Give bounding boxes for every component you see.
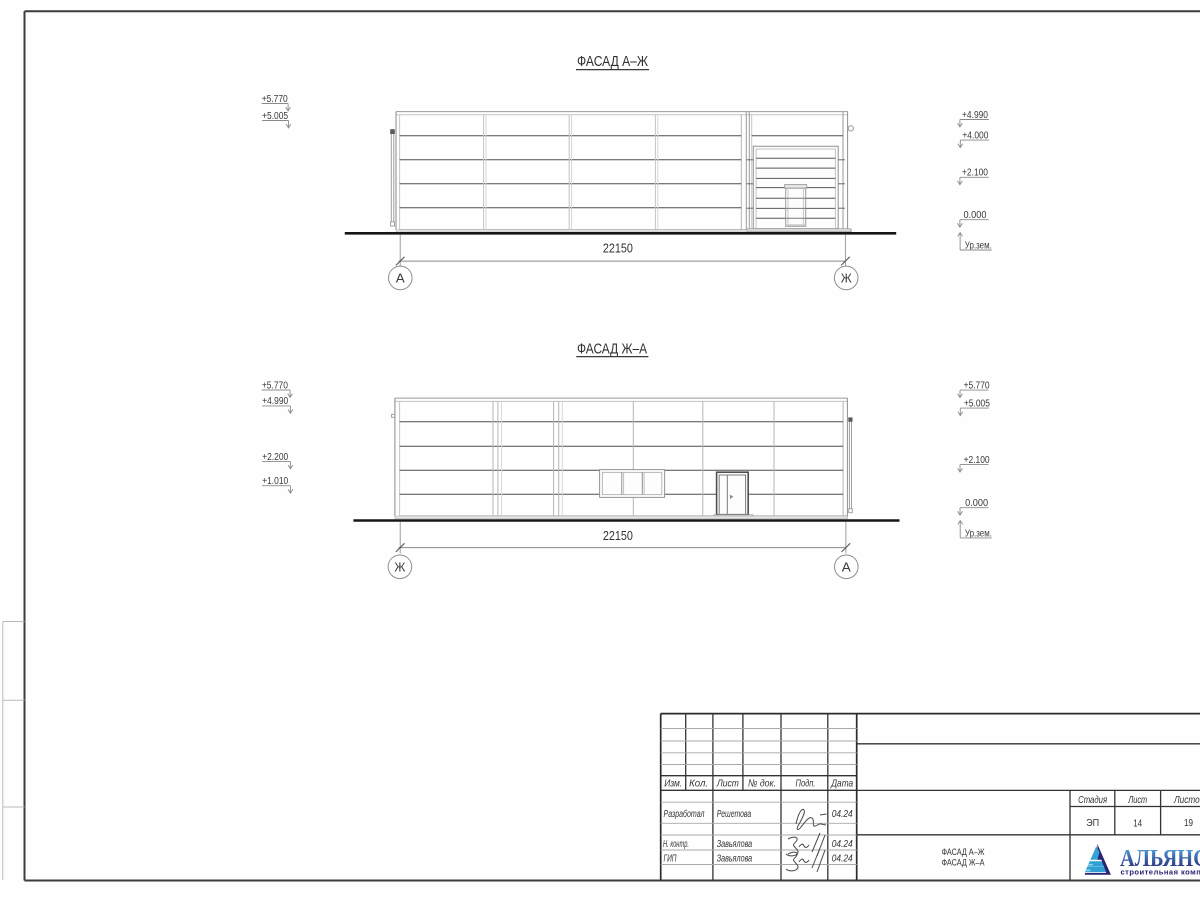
svg-text:ФАСАД А–Ж: ФАСАД А–Ж <box>577 53 648 70</box>
svg-text:№ док.: № док. <box>748 778 776 790</box>
svg-text:Завьялова: Завьялова <box>717 854 753 865</box>
svg-text:Разработал: Разработал <box>664 808 705 820</box>
svg-text:А: А <box>396 271 405 286</box>
svg-text:04.24: 04.24 <box>832 809 853 820</box>
svg-text:А: А <box>842 560 851 575</box>
svg-text:Подп.: Подп. <box>796 778 816 790</box>
svg-text:Кол.: Кол. <box>689 778 708 790</box>
svg-text:ФАСАД Ж–А: ФАСАД Ж–А <box>942 857 986 868</box>
svg-text:Н. контр.: Н. контр. <box>663 839 689 850</box>
svg-text:Листов: Листов <box>1173 794 1200 806</box>
svg-text:19: 19 <box>1184 817 1193 829</box>
svg-text:ФАСАД Ж–А: ФАСАД Ж–А <box>577 341 647 358</box>
svg-text:Изм.: Изм. <box>664 778 682 790</box>
svg-text:14: 14 <box>1133 817 1142 829</box>
svg-text:Решетова: Решетова <box>717 809 752 820</box>
svg-text:Дата: Дата <box>830 778 853 790</box>
svg-text:Лист: Лист <box>716 778 739 790</box>
svg-text:22150: 22150 <box>603 529 633 543</box>
svg-text:Стадия: Стадия <box>1078 794 1107 806</box>
svg-text:Ж: Ж <box>394 560 405 575</box>
svg-text:04.24: 04.24 <box>832 839 853 850</box>
svg-text:ГИП: ГИП <box>664 854 677 865</box>
svg-text:04.24: 04.24 <box>832 854 853 865</box>
svg-text:Ж: Ж <box>841 271 852 286</box>
svg-text:ЭП: ЭП <box>1086 817 1099 829</box>
svg-text:22150: 22150 <box>603 241 633 255</box>
svg-text:строительная компания: строительная компания <box>1121 868 1200 877</box>
svg-text:Лист: Лист <box>1127 794 1147 806</box>
svg-text:Завьялова: Завьялова <box>717 839 753 850</box>
